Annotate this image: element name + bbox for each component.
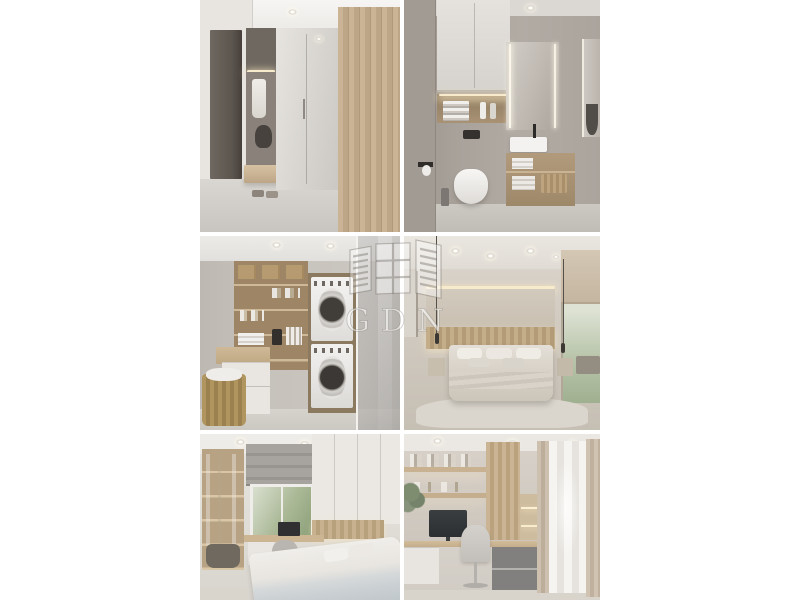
spotlight-icon <box>526 248 535 254</box>
spotlight-icon <box>326 243 335 249</box>
books-row <box>410 454 471 467</box>
detergent-bottles <box>240 310 264 322</box>
bottle <box>480 102 486 119</box>
storage-basket <box>541 174 566 193</box>
photo-bathroom <box>404 0 600 232</box>
pillow <box>469 358 491 367</box>
photo-kids-bedroom <box>200 434 400 600</box>
washer-door-icon <box>318 356 346 399</box>
kids-floor <box>200 588 248 600</box>
wall-hung-toilet <box>454 169 488 204</box>
spotlight-icon <box>236 439 245 445</box>
countertop-basin <box>510 137 547 152</box>
photo-home-office <box>404 434 600 600</box>
spotlight-icon <box>272 242 281 248</box>
led-strip-icon <box>439 94 508 96</box>
roman-blind <box>561 250 600 304</box>
hallway-door <box>210 30 242 178</box>
dark-basket <box>206 544 240 569</box>
beige-curtain <box>586 439 600 597</box>
top-shelf-baskets <box>238 265 304 279</box>
washer-control-panel <box>314 348 350 354</box>
dark-towel <box>586 104 598 134</box>
window-bench <box>576 356 600 373</box>
pendant-lamp-icon <box>436 236 437 333</box>
bottle <box>490 103 496 119</box>
bath-wall-cabinet <box>437 0 510 92</box>
dark-pitcher <box>272 329 282 345</box>
window-glow <box>553 459 580 559</box>
pendant-lamp-icon <box>563 259 564 342</box>
handbag <box>255 125 272 148</box>
headboard-wall <box>426 289 555 330</box>
wardrobe-door-seams <box>312 434 400 524</box>
hallway-niche-header <box>246 28 276 72</box>
pillow <box>502 358 524 367</box>
led-strip-icon <box>509 44 511 128</box>
shoes <box>266 191 278 198</box>
office-chair-post <box>474 562 478 585</box>
bed-blanket <box>449 372 553 389</box>
hanging-robe <box>252 79 266 118</box>
photo-laundry <box>200 236 400 430</box>
towel-stack <box>512 176 536 190</box>
bath-mirror <box>506 42 559 130</box>
gray-drawers <box>492 547 537 590</box>
white-cabinet <box>404 547 439 585</box>
towel-stack <box>512 158 534 170</box>
towels-in-basket <box>206 368 242 382</box>
glass-reflection <box>378 236 392 430</box>
led-strip-icon <box>554 44 556 128</box>
towel-stack <box>443 101 468 121</box>
nightstand-left <box>428 358 446 375</box>
bath-left-wall <box>404 0 436 232</box>
mirror-wardrobe <box>276 28 341 190</box>
wood-slat-closet <box>338 7 400 232</box>
monitor <box>429 510 466 537</box>
towel-stack <box>238 333 264 345</box>
wall-art <box>404 271 418 337</box>
area-rug <box>416 397 588 428</box>
flush-plate <box>463 130 481 139</box>
shelf-decor <box>206 454 240 545</box>
office-chair-base <box>463 583 488 588</box>
roman-blind <box>246 444 312 486</box>
monitor <box>278 522 300 536</box>
wood-shelf <box>404 467 486 472</box>
photo-collage-canvas: GDN <box>0 0 800 600</box>
shoes <box>252 190 264 197</box>
nightstand-right <box>557 358 573 375</box>
toilet-brush <box>441 188 449 207</box>
folded-linens <box>286 327 302 344</box>
beige-curtain <box>537 441 549 594</box>
photo-bedroom <box>404 236 600 430</box>
jars <box>272 288 300 298</box>
photo-hallway <box>200 0 400 232</box>
wicker-basket <box>202 374 246 426</box>
black-faucet <box>533 124 536 138</box>
spotlight-icon <box>451 248 460 254</box>
pendant-lamp-icon <box>435 333 439 344</box>
dryer-door-icon <box>318 288 346 331</box>
potted-plant <box>404 479 426 517</box>
pendant-lamp-icon <box>561 343 565 353</box>
wood-slat-column <box>486 442 519 540</box>
spotlight-icon <box>526 5 535 11</box>
vanity-shelf <box>506 171 575 173</box>
dryer-control-panel <box>314 281 350 287</box>
office-chair <box>461 525 490 562</box>
